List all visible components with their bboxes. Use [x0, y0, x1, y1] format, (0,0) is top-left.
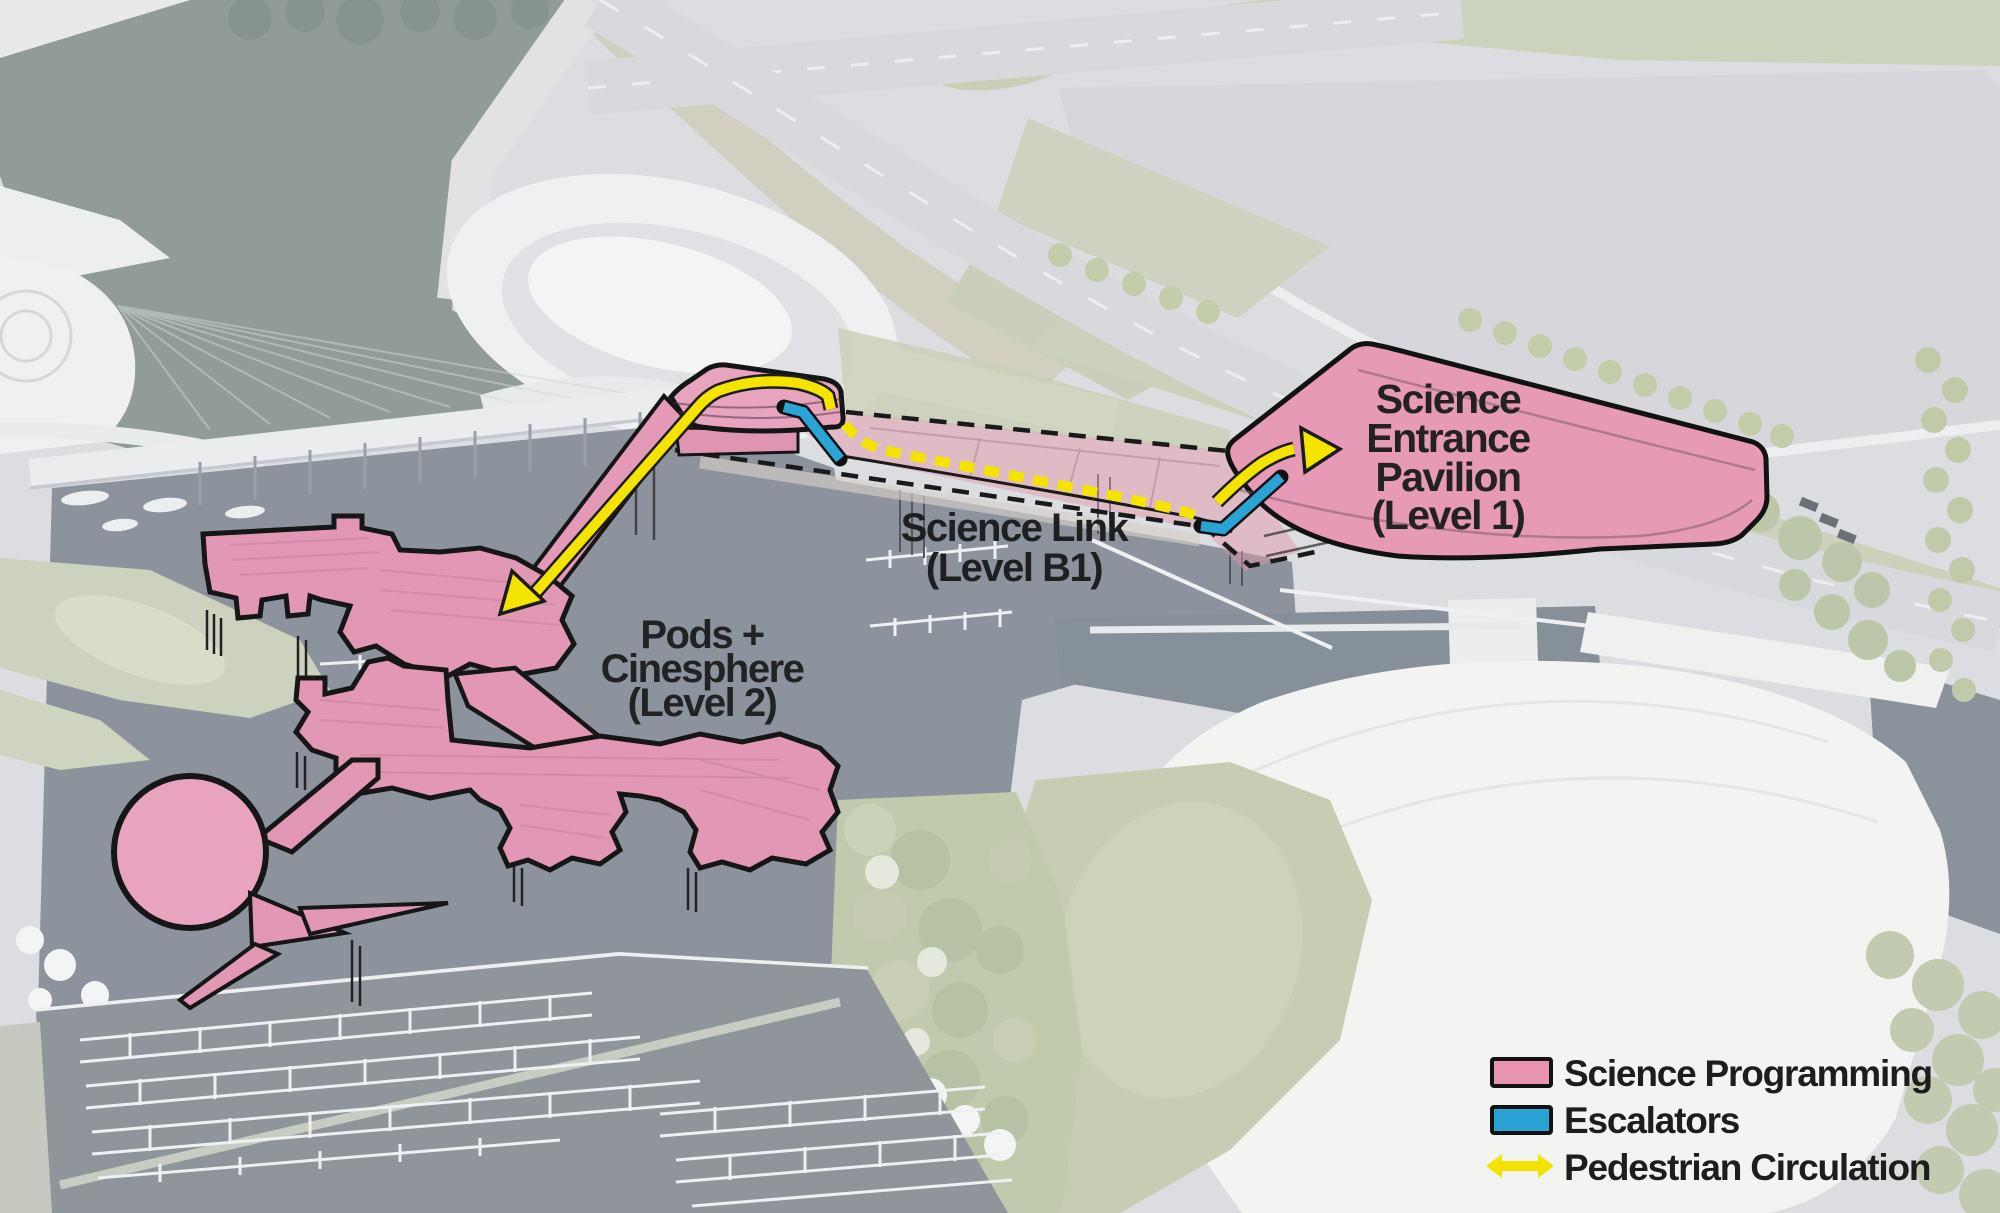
- svg-text:Escalators: Escalators: [1564, 1100, 1740, 1141]
- svg-text:Pedestrian Circulation: Pedestrian Circulation: [1564, 1147, 1930, 1188]
- svg-text:(Level B1): (Level B1): [926, 546, 1102, 590]
- svg-text:Science Link: Science Link: [901, 506, 1130, 550]
- svg-text:(Level 2): (Level 2): [628, 681, 777, 725]
- svg-text:Science Programming: Science Programming: [1564, 1053, 1932, 1094]
- svg-text:(Level 1): (Level 1): [1372, 492, 1525, 538]
